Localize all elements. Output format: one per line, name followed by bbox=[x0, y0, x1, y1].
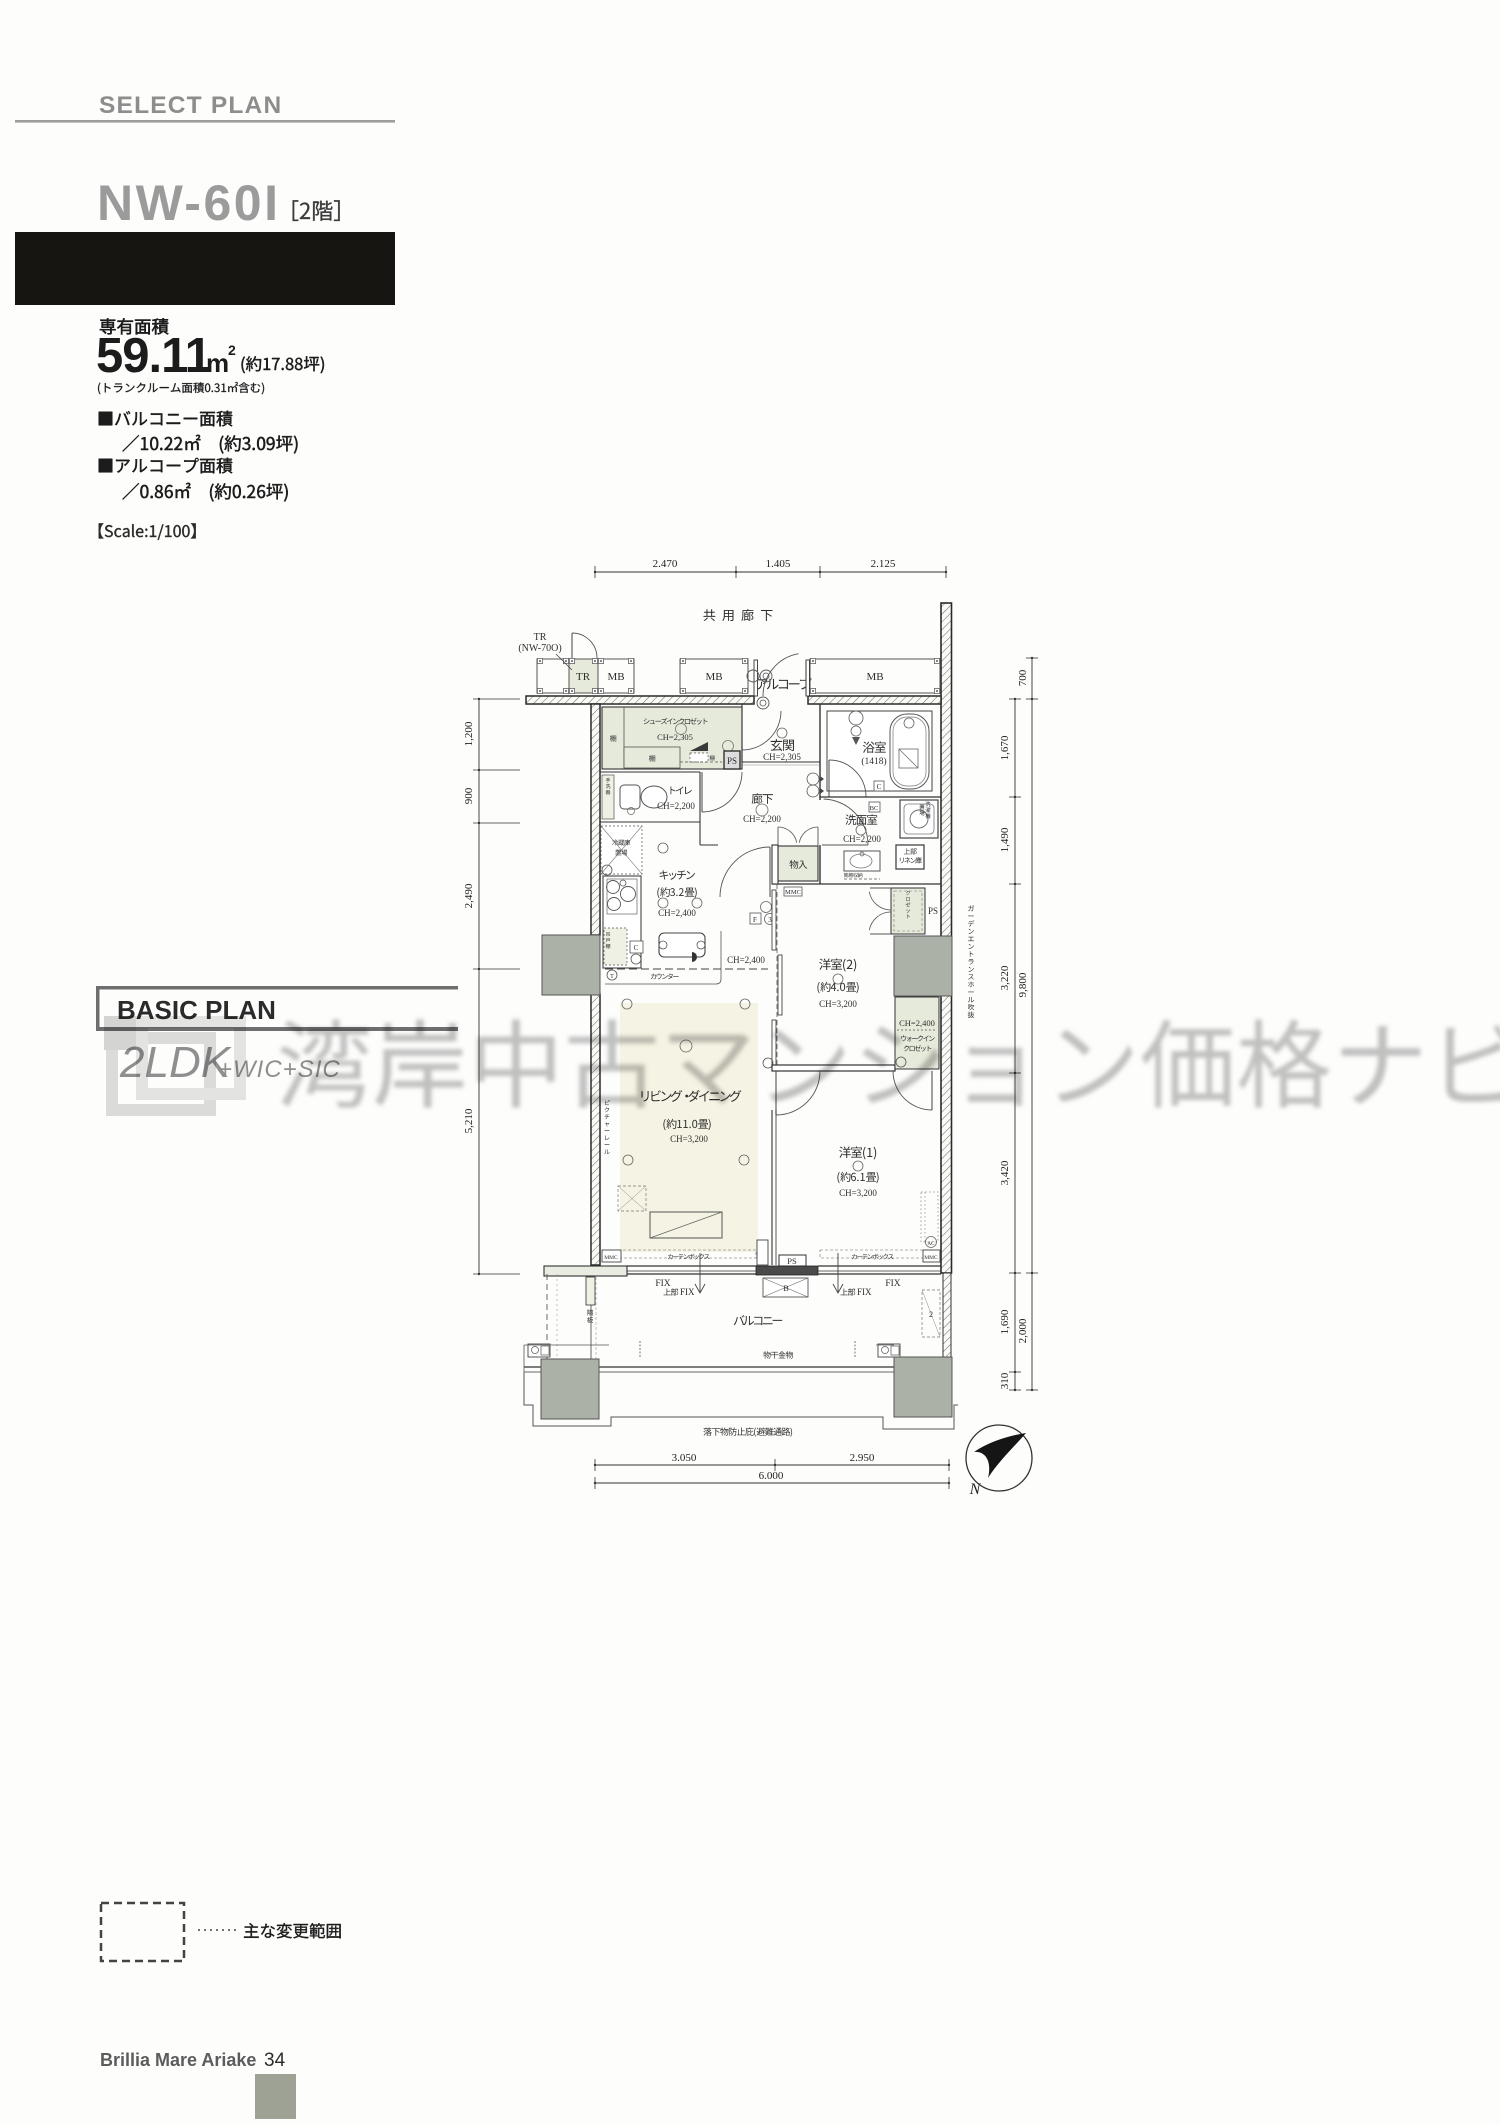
svg-text:CH=2,305: CH=2,305 bbox=[657, 732, 693, 742]
svg-text:(1418): (1418) bbox=[861, 756, 886, 767]
svg-text:T: T bbox=[610, 974, 614, 980]
svg-text:MMC: MMC bbox=[924, 1255, 938, 1261]
svg-text:59.11: 59.11 bbox=[96, 329, 211, 383]
svg-text:3,420: 3,420 bbox=[999, 1160, 1011, 1185]
svg-text:900: 900 bbox=[463, 787, 475, 804]
svg-text:CH=2,200: CH=2,200 bbox=[657, 801, 695, 811]
svg-text:F: F bbox=[753, 915, 757, 924]
svg-text:TR: TR bbox=[576, 671, 591, 683]
svg-text:3,220: 3,220 bbox=[999, 965, 1011, 990]
svg-text:1,670: 1,670 bbox=[999, 735, 1011, 760]
svg-text:CH=2,400: CH=2,400 bbox=[727, 955, 765, 965]
svg-text:N: N bbox=[969, 1481, 982, 1498]
svg-text:1,200: 1,200 bbox=[463, 721, 475, 746]
svg-text:C: C bbox=[634, 944, 639, 952]
svg-text:CH=2,200: CH=2,200 bbox=[843, 834, 881, 844]
svg-text:PS: PS bbox=[787, 1256, 797, 1266]
svg-text:6.000: 6.000 bbox=[759, 1470, 784, 1482]
svg-text:BC: BC bbox=[870, 805, 879, 812]
svg-text:FIX: FIX bbox=[680, 1287, 695, 1297]
svg-text:NW-60I: NW-60I bbox=[97, 175, 280, 231]
svg-text:AC: AC bbox=[928, 1242, 936, 1247]
svg-text:2.950: 2.950 bbox=[850, 1452, 875, 1464]
svg-text:2,490: 2,490 bbox=[463, 883, 475, 908]
svg-text:CH=3,200: CH=3,200 bbox=[839, 1188, 877, 1198]
svg-text:TR: TR bbox=[534, 632, 547, 643]
svg-text:CH=3,200: CH=3,200 bbox=[819, 999, 857, 1009]
svg-text:FIX: FIX bbox=[885, 1279, 900, 1289]
svg-text:2: 2 bbox=[929, 1310, 933, 1319]
svg-text:CH=3,200: CH=3,200 bbox=[670, 1134, 708, 1144]
svg-text:34: 34 bbox=[264, 2050, 286, 2071]
svg-text:C: C bbox=[877, 783, 882, 791]
svg-text:CH=2,400: CH=2,400 bbox=[658, 908, 696, 918]
svg-text:SELECT PLAN: SELECT PLAN bbox=[99, 92, 282, 119]
svg-text:2.125: 2.125 bbox=[871, 558, 896, 570]
svg-text:MB: MB bbox=[607, 671, 624, 683]
svg-text:FIX: FIX bbox=[857, 1287, 872, 1297]
svg-text:700: 700 bbox=[1017, 669, 1029, 686]
svg-text:2,000: 2,000 bbox=[1017, 1318, 1029, 1343]
svg-text:1.405: 1.405 bbox=[766, 558, 791, 570]
svg-text:1,690: 1,690 bbox=[999, 1309, 1011, 1334]
svg-text:CH=2,200: CH=2,200 bbox=[743, 814, 781, 824]
svg-text:1,490: 1,490 bbox=[999, 827, 1011, 852]
svg-text:PS: PS bbox=[727, 756, 737, 766]
svg-text:2: 2 bbox=[228, 342, 236, 358]
svg-text:m: m bbox=[206, 348, 229, 378]
svg-text:PS: PS bbox=[928, 906, 938, 916]
svg-text:Brillia Mare Ariake: Brillia Mare Ariake bbox=[100, 2050, 256, 2070]
svg-text:CH=2,305: CH=2,305 bbox=[763, 752, 801, 762]
svg-text:5,210: 5,210 bbox=[463, 1108, 475, 1133]
svg-text:MMC: MMC bbox=[785, 889, 801, 896]
svg-text:FIX: FIX bbox=[655, 1279, 670, 1289]
svg-text:B: B bbox=[783, 1284, 788, 1293]
svg-text:MMC: MMC bbox=[604, 1255, 618, 1261]
svg-text:CH=2,400: CH=2,400 bbox=[899, 1018, 935, 1028]
svg-text:(NW-70O): (NW-70O) bbox=[518, 643, 561, 654]
svg-text:MB: MB bbox=[866, 671, 883, 683]
svg-text:310: 310 bbox=[999, 1372, 1011, 1389]
svg-text:9,800: 9,800 bbox=[1017, 972, 1029, 997]
svg-text:2.470: 2.470 bbox=[653, 558, 678, 570]
svg-text:3.050: 3.050 bbox=[672, 1452, 697, 1464]
svg-text:MB: MB bbox=[705, 671, 722, 683]
